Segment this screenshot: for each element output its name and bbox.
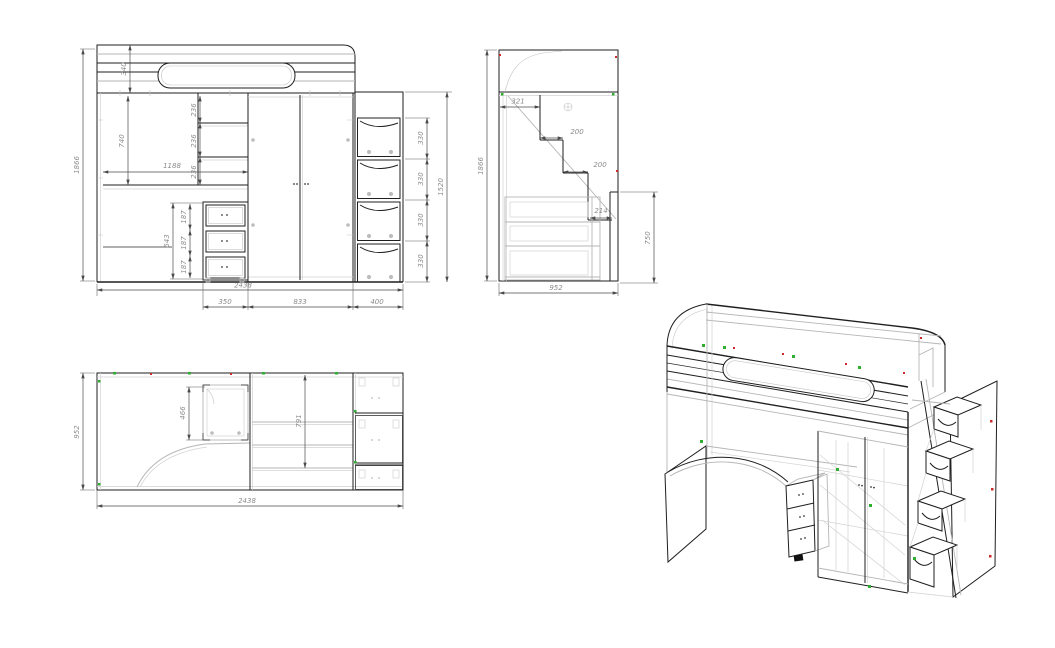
dim-front-step1: 330 [417, 131, 425, 145]
dim-side-step2: 200 [570, 128, 584, 136]
isometric-view [665, 304, 997, 598]
iso-staircase [908, 379, 997, 598]
dim-front-drawer3: 187 [180, 260, 188, 274]
front-stair-ladder [355, 92, 403, 282]
dim-front-drawer2: 187 [180, 236, 188, 250]
technical-drawing-canvas: 1866 340 740 1188 236 236 236 643 187 18… [0, 0, 1055, 648]
dim-front-shelf2: 236 [190, 134, 198, 148]
side-view: 1866 321 200 200 214 750 952 [477, 50, 658, 296]
dim-side-top-step: 321 [511, 98, 524, 106]
front-view: 1866 340 740 1188 236 236 236 643 187 18… [73, 45, 452, 310]
dim-front-drawer1: 187 [180, 210, 188, 224]
dim-front-shelf1: 236 [190, 103, 198, 117]
dim-front-ladder-width: 400 [370, 298, 384, 306]
iso-bed-frame [667, 304, 945, 473]
dim-front-ladder-height: 1520 [437, 178, 445, 196]
side-lower-cabinet [505, 197, 600, 280]
dim-front-drawer-unit-width: 350 [218, 298, 232, 306]
dim-front-drawer-stack: 643 [163, 234, 171, 247]
front-view-outline [97, 45, 403, 282]
dim-top-wardrobe-depth: 791 [295, 414, 303, 427]
dim-front-step4: 330 [417, 254, 425, 268]
dim-side-total-height: 1866 [477, 157, 485, 175]
dim-top-total-depth: 952 [73, 425, 81, 439]
front-joint-marks [97, 90, 353, 235]
dim-front-total-height: 1866 [73, 156, 81, 174]
top-pedestal-unit [203, 385, 248, 440]
dim-front-headboard: 340 [120, 62, 128, 76]
iso-drawer-pedestal [786, 473, 829, 562]
dim-front-shelf3: 236 [190, 165, 198, 179]
dim-front-total-width: 2438 [234, 282, 252, 290]
drawing-sheet: 1866 340 740 1188 236 236 236 643 187 18… [0, 0, 1055, 648]
top-view-outline [97, 372, 403, 490]
dim-front-underbed: 740 [118, 134, 126, 148]
dim-side-lower-height: 750 [644, 231, 652, 245]
dim-side-step4: 214 [594, 207, 607, 215]
dim-front-desk-width: 1188 [163, 162, 181, 170]
top-stair-column [355, 378, 403, 490]
front-drawer-faces [206, 205, 245, 282]
dim-side-total-depth: 952 [549, 284, 563, 292]
dim-top-total-width: 2438 [238, 497, 256, 505]
dim-side-step3: 200 [593, 161, 607, 169]
dim-front-step2: 330 [417, 172, 425, 186]
top-view: 952 466 791 2438 [73, 372, 403, 509]
iso-wardrobe [818, 412, 908, 593]
dim-front-step3: 330 [417, 213, 425, 227]
dim-top-inner-depth: 466 [179, 406, 187, 420]
dim-front-wardrobe-width: 833 [293, 298, 306, 306]
